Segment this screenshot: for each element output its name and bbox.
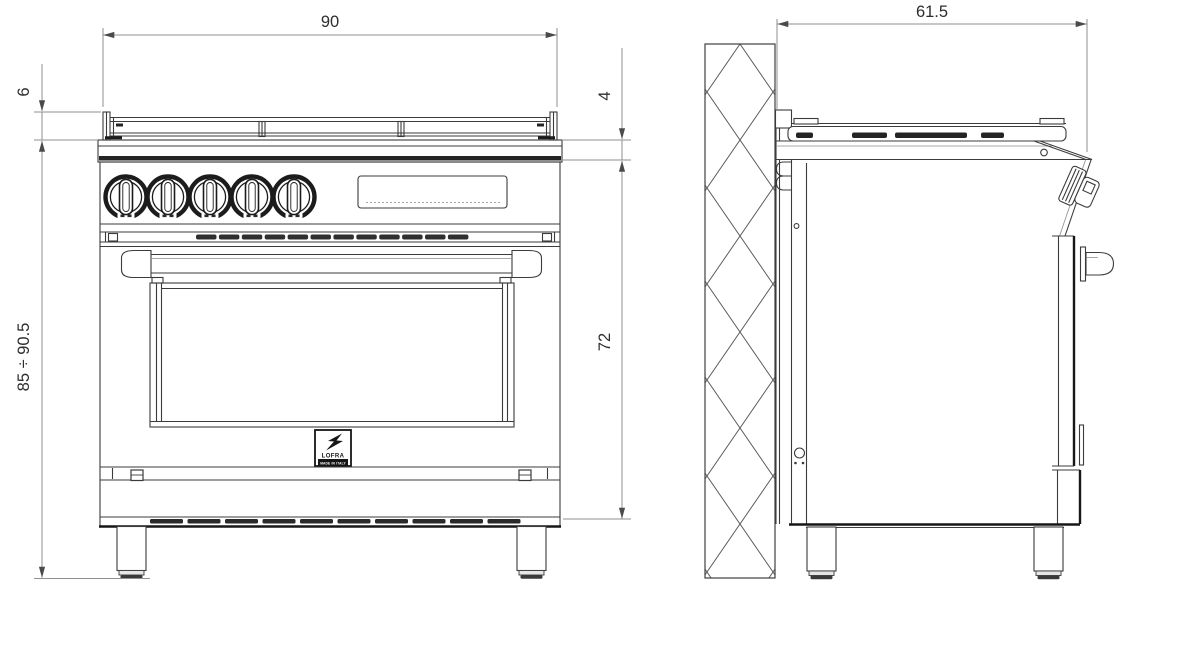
knob bbox=[232, 177, 273, 221]
hinge bbox=[131, 470, 143, 481]
knob bbox=[274, 177, 315, 221]
background bbox=[0, 0, 1177, 654]
dimension-depth-label: 61.5 bbox=[916, 3, 948, 21]
dimension-grate-height-label: 6 bbox=[15, 87, 33, 96]
dimension-top-trim-label: 4 bbox=[596, 91, 614, 100]
foot bbox=[1034, 527, 1063, 579]
logo-origin-text: MADE IN ITALY bbox=[320, 461, 346, 465]
foot bbox=[117, 527, 146, 579]
brand-logo: LOFRA MADE IN ITALY bbox=[315, 430, 351, 466]
technical-drawing-page: LOFRA MADE IN ITALY bbox=[0, 0, 1177, 654]
foot bbox=[807, 527, 836, 579]
foot bbox=[517, 527, 546, 579]
knob bbox=[148, 177, 189, 221]
worktop-edge bbox=[776, 141, 1092, 160]
knob bbox=[190, 177, 231, 221]
hinge bbox=[519, 470, 531, 481]
burner-knobs bbox=[106, 177, 315, 221]
knob bbox=[106, 177, 147, 221]
dimension-width-label: 90 bbox=[321, 13, 339, 31]
logo-brand-text: LOFRA bbox=[322, 454, 345, 460]
range-cooker-dimension-drawing: LOFRA MADE IN ITALY bbox=[0, 0, 1177, 654]
door-handle-profile bbox=[1086, 253, 1114, 276]
wall-section bbox=[705, 44, 775, 578]
dimension-body-height-label: 72 bbox=[596, 333, 614, 351]
dimension-overall-height-label: 85 ÷ 90.5 bbox=[15, 323, 33, 392]
backsplash-lip bbox=[776, 110, 792, 128]
